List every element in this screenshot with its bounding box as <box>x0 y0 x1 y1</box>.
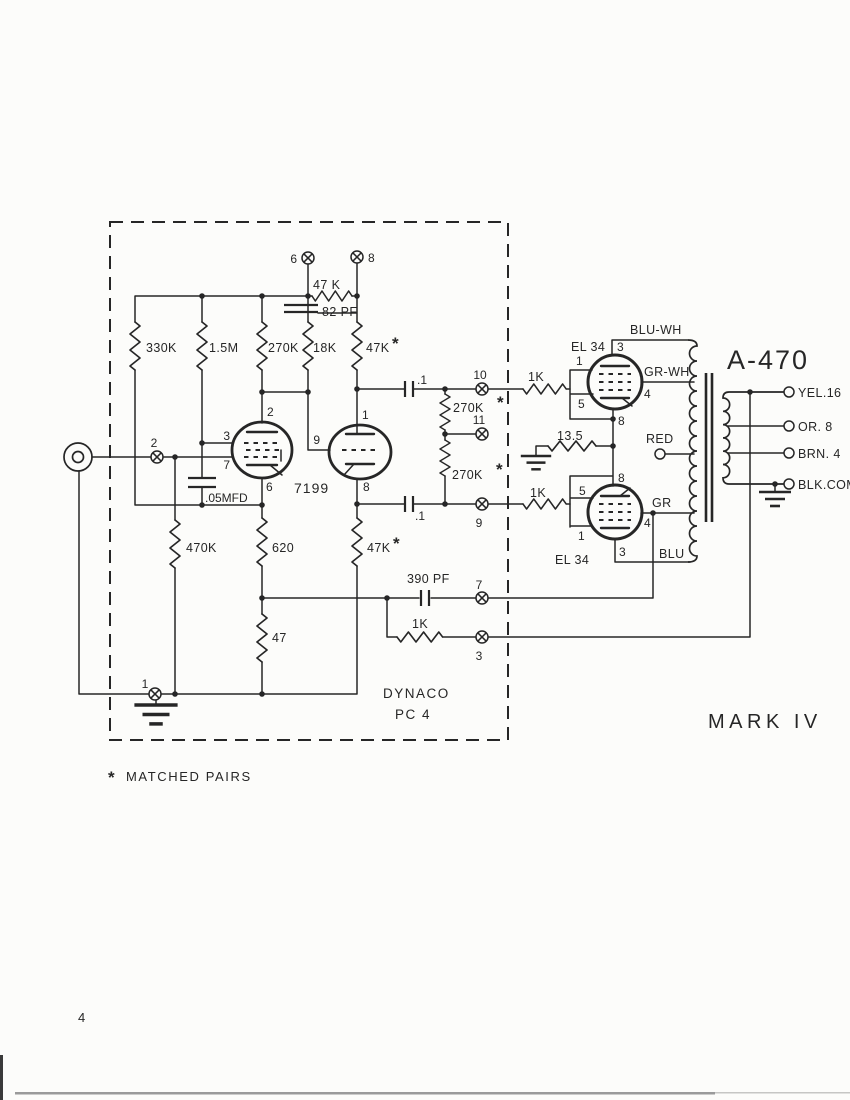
scan-artifact-bottom-line-faint <box>715 1092 850 1094</box>
terminal-6 <box>302 252 314 264</box>
resistor-47k-top-label: 47 K <box>313 278 341 292</box>
terminal-8-label: 8 <box>368 251 375 265</box>
output-terminal-16ohm <box>784 387 794 397</box>
wire-blu-wh-label: BLU-WH <box>630 323 682 337</box>
scan-artifact-left-edge <box>0 1055 3 1100</box>
capacitor-390pf <box>421 590 429 606</box>
board-name-line2: PC 4 <box>395 707 431 722</box>
pin-7199-2: 2 <box>267 405 274 419</box>
pin-el34l-1: 1 <box>578 529 585 543</box>
resistor-47k-lower-label: 47K <box>367 541 391 555</box>
terminal-9 <box>476 498 488 510</box>
wire-red-label: RED <box>646 432 674 446</box>
matched-pairs-note: MATCHED PAIRS <box>126 769 252 784</box>
resistor-1k-upper-label: 1K <box>528 370 544 384</box>
resistor-270k-b <box>440 440 450 476</box>
matched-pairs-note-star: * <box>108 768 115 787</box>
resistor-470k <box>170 520 180 568</box>
capacitor-.05mfd-label: .05MFD <box>205 491 248 505</box>
terminal-11 <box>476 428 488 440</box>
tube-el34-lower-label: EL 34 <box>555 553 589 567</box>
output-terminal-8ohm <box>784 421 794 431</box>
resistor-620-label: 620 <box>272 541 294 555</box>
pin-7199-7: 7 <box>223 458 230 472</box>
resistor-1k-feedback <box>397 632 443 642</box>
output-terminal-4ohm <box>784 448 794 458</box>
terminal-10-label: 10 <box>473 368 487 382</box>
matched-pair-star-1: * <box>392 334 399 353</box>
resistor-270k-label: 270K <box>268 341 299 355</box>
resistor-1k-lower <box>523 499 566 509</box>
wire-blu-label: BLU <box>659 547 685 561</box>
resistor-47k-upper <box>352 322 362 370</box>
amplifier-model-title: MARK IV <box>708 711 822 733</box>
terminal-8 <box>351 251 363 263</box>
pin-el34u-8: 8 <box>618 414 625 428</box>
resistor-270k-a <box>440 394 450 430</box>
capacitor-.1-upper <box>405 381 413 397</box>
capacitor-82pf <box>284 305 318 312</box>
terminal-1 <box>149 688 161 700</box>
terminal-9-label: 9 <box>476 516 483 530</box>
output-yel-16-label: YEL.16 <box>798 386 841 400</box>
resistor-1.5m-label: 1.5M <box>209 341 238 355</box>
output-blk-com-label: BLK.COM <box>798 478 850 492</box>
ground-secondary-icon <box>759 492 791 506</box>
schematic-canvas: 6 8 47 K 82 PF 330K 1.5M 270K 18K 47K * … <box>0 0 850 1100</box>
resistor-47k-upper-label: 47K <box>366 341 390 355</box>
pin-el34u-4: 4 <box>644 387 651 401</box>
output-or-8-label: OR. 8 <box>798 420 833 434</box>
terminal-6-label: 6 <box>290 252 297 266</box>
input-jack <box>64 443 92 471</box>
pin-el34u-1: 1 <box>576 354 583 368</box>
pin-el34u-5: 5 <box>578 397 585 411</box>
capacitor-.1-lower-label: .1 <box>415 509 425 523</box>
tube-el34-lower <box>588 485 642 539</box>
resistor-13.5-label: 13.5 <box>557 429 583 443</box>
matched-pair-star-4: * <box>496 460 503 479</box>
matched-pair-star-2: * <box>393 534 400 553</box>
red-lead-terminal <box>655 449 665 459</box>
resistor-270k-b-label: 270K <box>452 468 483 482</box>
matched-pair-star-3: * <box>497 393 504 412</box>
terminal-10 <box>476 383 488 395</box>
pin-el34u-3: 3 <box>617 340 624 354</box>
pin-7199-3: 3 <box>223 429 230 443</box>
output-terminal-common <box>784 479 794 489</box>
capacitor-390pf-label: 390 PF <box>407 572 450 586</box>
capacitor-82pf-label: 82 PF <box>322 305 357 319</box>
resistor-330k <box>130 322 140 370</box>
capacitor-.05mfd <box>188 478 216 487</box>
capacitor-.1-lower <box>405 496 413 512</box>
terminal-3-label: 3 <box>476 649 483 663</box>
terminal-1-label: 1 <box>142 677 149 691</box>
resistor-47 <box>257 614 267 662</box>
pin-el34l-4: 4 <box>644 516 651 530</box>
terminal-3 <box>476 631 488 643</box>
wire-gr-wh-label: GR-WH <box>644 365 690 379</box>
resistor-270k-a-label: 270K <box>453 401 484 415</box>
transformer-secondary-coil <box>723 392 784 484</box>
tube-7199-label: 7199 <box>294 480 329 496</box>
pin-el34l-3: 3 <box>619 545 626 559</box>
resistor-18k-label: 18K <box>313 341 337 355</box>
terminal-2-label: 2 <box>151 436 158 450</box>
pin-el34l-5: 5 <box>579 484 586 498</box>
resistor-330k-label: 330K <box>146 341 177 355</box>
resistor-1k-upper <box>523 384 566 394</box>
ground-bias-icon <box>521 456 551 469</box>
pin-7199-6: 6 <box>266 480 273 494</box>
tube-el34-upper <box>588 355 642 409</box>
page-number: 4 <box>78 1010 85 1025</box>
pin-7199-1: 1 <box>362 408 369 422</box>
capacitor-.1-upper-label: .1 <box>417 373 427 387</box>
output-brn-4-label: BRN. 4 <box>798 447 841 461</box>
resistor-47k-top <box>312 291 352 301</box>
resistor-620 <box>257 518 267 566</box>
pin-el34l-8: 8 <box>618 471 625 485</box>
scan-artifact-bottom-line <box>15 1092 715 1095</box>
resistor-1.5m <box>197 322 207 370</box>
terminal-2 <box>151 451 163 463</box>
pin-7199-9: 9 <box>313 433 320 447</box>
pin-7199-8: 8 <box>363 480 370 494</box>
schematic-page: 6 8 47 K 82 PF 330K 1.5M 270K 18K 47K * … <box>0 0 850 1100</box>
resistor-47-label: 47 <box>272 631 287 645</box>
terminal-11-label: 11 <box>473 413 486 427</box>
transformer-model-label: A-470 <box>727 345 809 375</box>
board-name-line1: DYNACO <box>383 686 450 701</box>
resistor-47k-lower <box>352 518 362 566</box>
ground-input-icon <box>134 705 177 724</box>
resistor-18k <box>303 322 313 370</box>
resistor-270k <box>257 322 267 370</box>
resistor-1k-lower-label: 1K <box>530 486 546 500</box>
terminal-7-label: 7 <box>476 578 483 592</box>
wire-gr-label: GR <box>652 496 672 510</box>
resistor-470k-label: 470K <box>186 541 217 555</box>
terminal-7 <box>476 592 488 604</box>
tube-el34-upper-label: EL 34 <box>571 340 605 354</box>
resistor-1k-feedback-label: 1K <box>412 617 428 631</box>
